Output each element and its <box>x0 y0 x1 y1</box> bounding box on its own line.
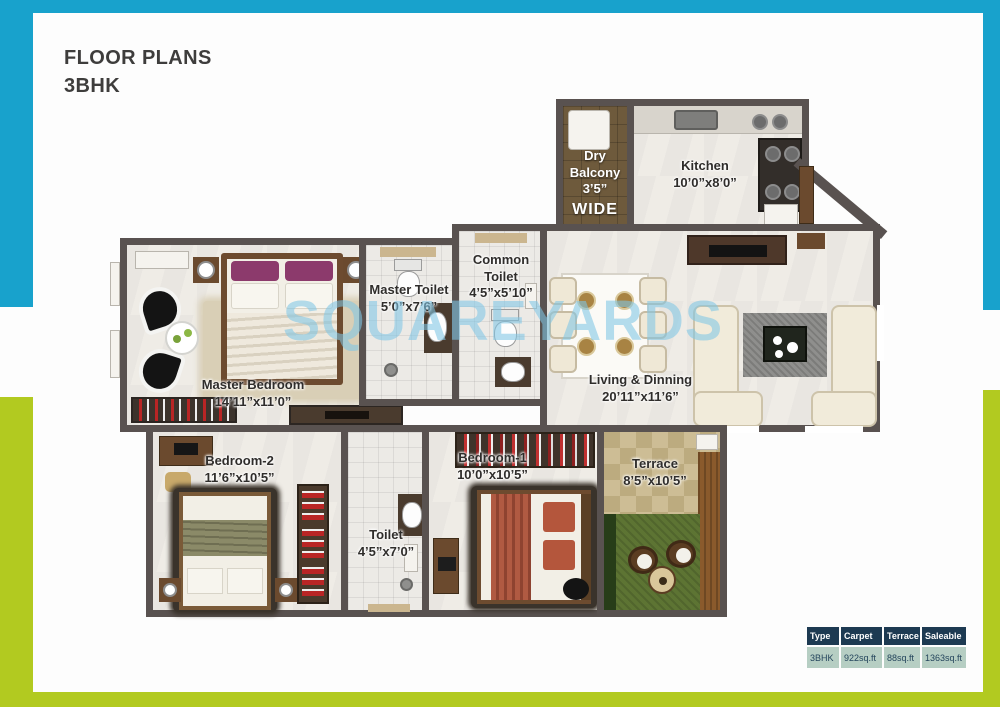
lawn <box>604 514 700 610</box>
room-size: 4’5”x7’0” <box>346 544 426 561</box>
label-bedroom-1: Bedroom-1 10’0”x10’5” <box>430 450 555 483</box>
sofa-right <box>831 305 877 405</box>
room-size: 8’5”x10’5” <box>604 473 706 490</box>
label-master-toilet: Master Toilet 5’0”x7’6” <box>366 282 452 315</box>
room-name: Bedroom-1 <box>458 450 527 465</box>
room-size: 14’11”x11’0” <box>158 394 348 411</box>
room-name: Master Toilet <box>369 282 448 297</box>
frame-bar-right-blue <box>983 0 1000 310</box>
door-mat <box>368 604 410 612</box>
page-title-line1: FLOOR PLANS <box>64 44 212 72</box>
tv-screen <box>709 245 767 257</box>
table-center <box>659 577 667 585</box>
label-dry-balcony: Dry Balcony 3’5” WIDE <box>560 148 630 220</box>
label-bedroom-2: Bedroom-2 11’6”x10’5” <box>182 453 297 486</box>
dining-chair <box>549 277 577 305</box>
room-name: Master Bedroom <box>202 377 305 392</box>
bed-pillow-rust <box>543 502 575 532</box>
bath-mat <box>380 247 436 257</box>
window-strip <box>877 305 884 361</box>
frame-bar-top <box>0 0 1000 13</box>
cup <box>773 336 782 345</box>
room-terrace <box>597 425 727 617</box>
bed-duvet <box>227 313 337 379</box>
side-cabinet <box>797 233 825 249</box>
room-name: Terrace <box>632 456 678 471</box>
area-table-header: Type <box>807 627 839 645</box>
dining-chair <box>639 311 667 339</box>
frame-bar-left-blue <box>0 0 33 307</box>
nightstand <box>193 257 219 283</box>
toilet-wc <box>394 259 422 271</box>
room-name: Kitchen <box>681 158 729 173</box>
side-table <box>165 321 199 355</box>
stove-burner <box>784 184 800 200</box>
wardrobe-shelf <box>302 528 324 558</box>
room-size: 5’0”x7’6” <box>366 299 452 316</box>
label-terrace: Terrace 8’5”x10’5” <box>604 456 706 489</box>
bed-pillow-purple <box>285 261 333 281</box>
stove-burner <box>765 184 781 200</box>
chair-cushion <box>676 548 691 563</box>
kitchen-sink <box>674 110 718 130</box>
page-title: FLOOR PLANS 3BHK <box>64 44 212 100</box>
bed-pillow-white <box>227 568 263 594</box>
coffee-table <box>763 326 807 362</box>
label-common-toilet: Common Toilet 4’5”x5’10” <box>460 252 542 302</box>
master-bed <box>221 253 343 385</box>
room-master-toilet <box>359 238 459 406</box>
shower-head <box>400 578 413 591</box>
room-name: Toilet <box>369 527 403 542</box>
wash-basin <box>402 502 422 528</box>
counter-hob-knob <box>772 114 788 130</box>
room-name: Living & Dinning <box>589 372 692 387</box>
bath-mat <box>475 233 527 243</box>
dresser-detail <box>325 411 369 419</box>
counter-hob-knob <box>752 114 768 130</box>
sofa-right-chaise <box>811 391 877 427</box>
window-ledge <box>110 330 120 378</box>
wardrobe-shelf <box>302 490 324 520</box>
dining-chair <box>639 345 667 373</box>
lamp <box>279 583 293 597</box>
chair-cushion <box>637 554 652 569</box>
lamp <box>197 261 215 279</box>
living-rug <box>743 313 827 377</box>
room-size: 20’11”x11’6” <box>558 389 723 406</box>
plate <box>615 291 634 310</box>
dining-chair <box>549 311 577 339</box>
ac-unit <box>696 434 718 450</box>
toilet-bowl <box>494 321 517 347</box>
washing-machine <box>568 110 610 150</box>
toilet-wc <box>491 309 519 321</box>
bed-blanket <box>183 520 267 556</box>
window-ledge <box>110 262 120 306</box>
area-table-cell: 88sq.ft <box>884 647 920 668</box>
area-table-cell: 3BHK <box>807 647 839 668</box>
wash-counter <box>495 357 531 387</box>
room-name: Dry Balcony <box>570 148 621 180</box>
room-size: 10’0”x10’5” <box>430 467 555 484</box>
bed-pillow-rust <box>543 540 575 570</box>
room-size: 10’0”x8’0” <box>645 175 765 192</box>
bed-pillow-white <box>187 568 223 594</box>
dining-chair <box>639 277 667 305</box>
bed-pillow-white <box>285 283 333 309</box>
plate <box>615 337 634 356</box>
dresser <box>135 251 189 269</box>
room-size: 3’5” <box>560 181 630 198</box>
plate <box>577 291 596 310</box>
room-name: Common Toilet <box>473 252 529 284</box>
area-table-cell: 922sq.ft <box>841 647 882 668</box>
room-name: Bedroom-2 <box>205 453 274 468</box>
bed-2 <box>179 492 271 610</box>
nightstand <box>159 578 181 602</box>
label-kitchen: Kitchen 10’0”x8’0” <box>645 158 765 191</box>
nightstand <box>275 578 297 602</box>
cup <box>173 335 181 343</box>
cup <box>787 342 798 353</box>
area-table-header: Carpet <box>841 627 882 645</box>
plate <box>577 337 596 356</box>
frame-bar-right-green <box>983 390 1000 707</box>
area-table-header: Terrace <box>884 627 920 645</box>
stove-burner <box>765 146 781 162</box>
stool <box>563 578 589 600</box>
wicker-chair <box>666 540 696 568</box>
room-extra: WIDE <box>560 200 630 220</box>
shower-head <box>384 363 398 377</box>
tv-console <box>687 235 787 265</box>
label-living-dinning: Living & Dinning 20’11”x11’6” <box>558 372 723 405</box>
area-table-header: Saleable <box>922 627 966 645</box>
room-size: 11’6”x10’5” <box>182 470 297 487</box>
cup <box>184 329 192 337</box>
label-toilet: Toilet 4’5”x7’0” <box>346 527 426 560</box>
wash-basin <box>501 362 525 382</box>
page-title-line2: 3BHK <box>64 72 212 100</box>
wardrobe-shelf <box>302 566 324 596</box>
room-size: 4’5”x5’10” <box>460 285 542 302</box>
area-table-cell: 1363sq.ft <box>922 647 966 668</box>
patio-table <box>648 566 676 594</box>
cup <box>775 350 783 358</box>
area-table: Type Carpet Terrace Saleable 3BHK 922sq.… <box>807 627 966 668</box>
open-wardrobe <box>297 484 329 604</box>
window-strip <box>805 426 863 433</box>
frame-bar-left-green <box>0 397 33 707</box>
hedge <box>604 514 616 610</box>
wash-basin <box>427 312 447 342</box>
bed-pillow-white <box>231 283 279 309</box>
lamp <box>163 583 177 597</box>
laptop <box>438 557 456 571</box>
dining-chair <box>549 345 577 373</box>
desk <box>433 538 459 594</box>
room-toilet-2 <box>341 425 429 617</box>
hall-cabinet <box>799 166 814 224</box>
floor-plan-page: FLOOR PLANS 3BHK <box>0 0 1000 707</box>
frame-bar-bottom <box>0 692 1000 707</box>
bed-drape <box>491 494 531 600</box>
label-master-bedroom: Master Bedroom 14’11”x11’0” <box>158 377 348 410</box>
bed-pillow-purple <box>231 261 279 281</box>
